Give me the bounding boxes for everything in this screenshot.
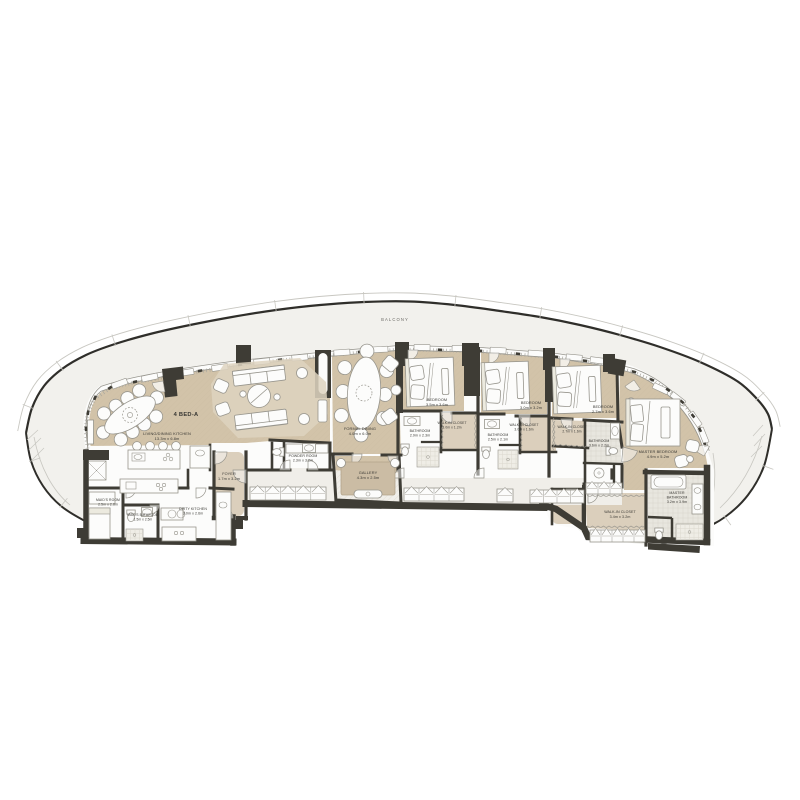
svg-text:WALK-IN CLOSET: WALK-IN CLOSET bbox=[557, 425, 586, 429]
svg-text:MAID'S BATHROOM: MAID'S BATHROOM bbox=[127, 513, 159, 517]
svg-text:3.0m x 1.6m: 3.0m x 1.6m bbox=[514, 427, 533, 431]
svg-text:BEDROOM: BEDROOM bbox=[593, 405, 613, 409]
svg-text:3.2m x 3.9m: 3.2m x 3.9m bbox=[667, 500, 687, 504]
svg-text:BATHROOM: BATHROOM bbox=[667, 496, 688, 500]
svg-text:BATHROOM: BATHROOM bbox=[589, 439, 610, 443]
svg-text:4.9m x 5.2m: 4.9m x 5.2m bbox=[647, 454, 670, 459]
svg-text:MAID'S ROOM: MAID'S ROOM bbox=[96, 498, 120, 502]
svg-text:3.4m x 3.2m: 3.4m x 3.2m bbox=[610, 515, 631, 519]
svg-text:2.5m x 2.6m: 2.5m x 2.6m bbox=[98, 503, 118, 507]
svg-text:POWDER ROOM: POWDER ROOM bbox=[289, 454, 318, 458]
svg-text:BEDROOM: BEDROOM bbox=[521, 401, 541, 405]
svg-text:3.5m x 3.6m: 3.5m x 3.6m bbox=[426, 403, 448, 407]
svg-text:4.0m x 6.0m: 4.0m x 6.0m bbox=[349, 431, 372, 436]
svg-text:1.7m x 3.2m: 1.7m x 3.2m bbox=[218, 477, 240, 481]
svg-text:2.7m x 3.6m: 2.7m x 3.6m bbox=[592, 410, 614, 414]
svg-text:MASTER: MASTER bbox=[669, 491, 685, 495]
svg-text:WALK-IN CLOSET: WALK-IN CLOSET bbox=[604, 510, 636, 514]
svg-text:2.5m x 2.1m: 2.5m x 2.1m bbox=[488, 438, 508, 442]
svg-text:4.3m x 2.5m: 4.3m x 2.5m bbox=[357, 475, 380, 480]
svg-text:WALK-IN CLOSET: WALK-IN CLOSET bbox=[509, 423, 538, 427]
svg-text:2.9m x 2.3m: 2.9m x 2.3m bbox=[410, 434, 430, 438]
svg-text:BALCONY: BALCONY bbox=[381, 317, 409, 322]
svg-text:2.3m x 3.2m: 2.3m x 3.2m bbox=[293, 459, 313, 463]
svg-text:3.0m x 3.2m: 3.0m x 3.2m bbox=[520, 406, 542, 410]
svg-text:3.0m x 2.6m: 3.0m x 2.6m bbox=[183, 512, 203, 516]
svg-text:4 BED-A: 4 BED-A bbox=[174, 412, 199, 418]
svg-text:BATHROOM: BATHROOM bbox=[488, 433, 509, 437]
svg-text:FOYER: FOYER bbox=[222, 472, 236, 476]
svg-text:WALK-IN CLOSET: WALK-IN CLOSET bbox=[437, 421, 466, 425]
svg-text:DIRTY KITCHEN: DIRTY KITCHEN bbox=[179, 507, 207, 511]
svg-text:2.7m x 1.6m: 2.7m x 1.6m bbox=[562, 429, 581, 433]
svg-text:BEDROOM: BEDROOM bbox=[427, 398, 447, 402]
svg-text:BATHROOM: BATHROOM bbox=[410, 429, 431, 433]
svg-text:3.0m x 1.2m: 3.0m x 1.2m bbox=[442, 425, 461, 429]
svg-text:13.3m x 6.8m: 13.3m x 6.8m bbox=[155, 436, 180, 441]
svg-text:1.5m x 2.5m: 1.5m x 2.5m bbox=[134, 517, 153, 521]
svg-text:3.6m x 2.2m: 3.6m x 2.2m bbox=[589, 444, 609, 448]
